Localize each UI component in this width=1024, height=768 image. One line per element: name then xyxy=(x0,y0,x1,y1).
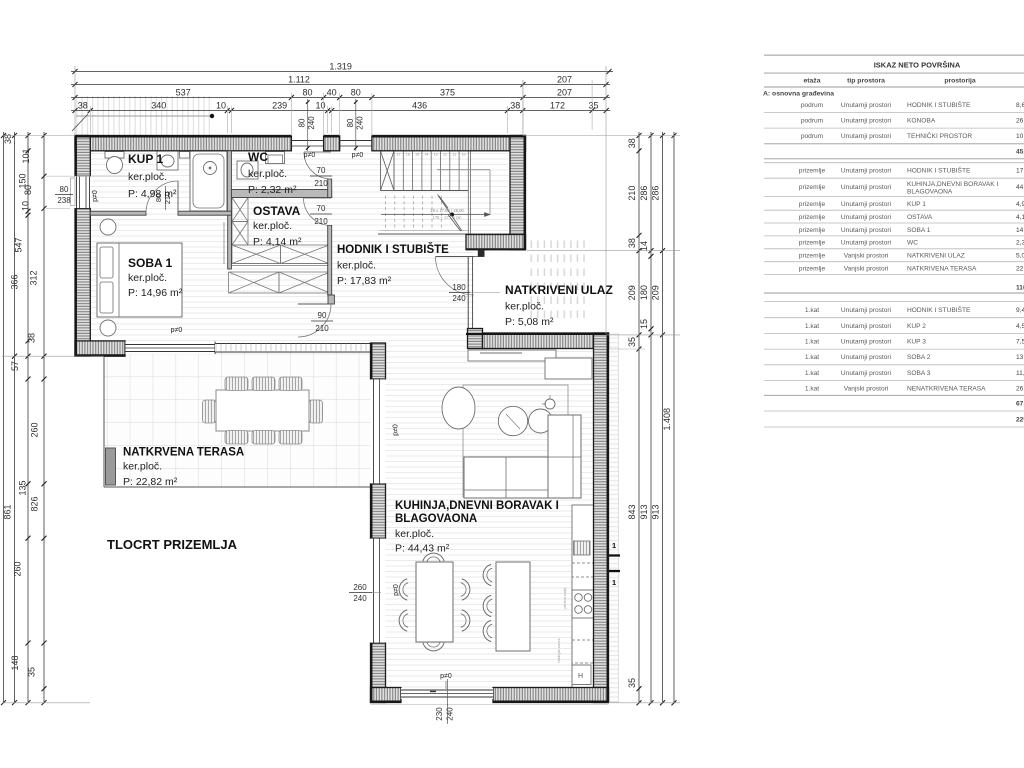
svg-text:286: 286 xyxy=(651,186,661,201)
svg-text:ker.ploč.: ker.ploč. xyxy=(253,220,292,232)
svg-text:80: 80 xyxy=(302,87,312,97)
svg-text:Unutarnji prostori: Unutarnji prostori xyxy=(841,102,892,109)
svg-text:ker.ploč.: ker.ploč. xyxy=(505,301,544,313)
svg-text:35: 35 xyxy=(627,678,637,688)
svg-text:913: 913 xyxy=(639,504,649,519)
svg-text:SOBA 3: SOBA 3 xyxy=(907,370,931,377)
svg-text:ISKAZ NETO POVRŠINA: ISKAZ NETO POVRŠINA xyxy=(874,61,961,70)
svg-text:WC: WC xyxy=(907,240,918,247)
svg-text:70: 70 xyxy=(317,204,326,213)
svg-text:SOBA 2: SOBA 2 xyxy=(907,354,931,361)
svg-text:KUP 2: KUP 2 xyxy=(907,323,926,330)
svg-text:Unutarnji prostori: Unutarnji prostori xyxy=(841,240,892,247)
svg-text:14: 14 xyxy=(639,241,649,251)
svg-text:Unutarnji prostori: Unutarnji prostori xyxy=(841,370,892,377)
svg-text:OSTAVA: OSTAVA xyxy=(253,204,301,218)
svg-text:80: 80 xyxy=(298,118,307,127)
svg-text:A: osnovna građevina: A: osnovna građevina xyxy=(763,90,834,97)
svg-text:KUP 3: KUP 3 xyxy=(907,339,926,346)
svg-text:ker.ploč.: ker.ploč. xyxy=(128,171,167,183)
svg-text:366: 366 xyxy=(10,274,20,289)
svg-text:436: 436 xyxy=(412,100,427,110)
svg-text:prizemlje: prizemlje xyxy=(799,201,826,208)
svg-text:101: 101 xyxy=(21,148,31,163)
svg-text:NATKRIVENI ULAZ: NATKRIVENI ULAZ xyxy=(505,283,613,297)
svg-text:260: 260 xyxy=(353,583,367,592)
svg-text:238: 238 xyxy=(57,196,71,205)
svg-text:70: 70 xyxy=(317,166,326,175)
svg-text:prizemlje: prizemlje xyxy=(799,253,826,260)
svg-text:207: 207 xyxy=(557,74,572,84)
svg-text:Unutarnji prostori: Unutarnji prostori xyxy=(841,184,892,191)
svg-text:4,98: 4,98 xyxy=(1016,201,1024,208)
svg-text:1.kat: 1.kat xyxy=(805,386,819,393)
svg-text:209: 209 xyxy=(627,285,637,300)
svg-text:Unutarnji prostori: Unutarnji prostori xyxy=(841,339,892,346)
svg-text:podrum: podrum xyxy=(801,118,824,125)
svg-text:180: 180 xyxy=(452,283,466,292)
svg-text:90: 90 xyxy=(318,311,327,320)
svg-text:537: 537 xyxy=(176,87,191,97)
svg-text:prizemlje: prizemlje xyxy=(799,227,826,234)
svg-text:p≠0: p≠0 xyxy=(352,152,364,159)
svg-text:1.408: 1.408 xyxy=(662,408,672,431)
svg-text:10: 10 xyxy=(462,153,466,157)
svg-text:175 + 27,00 cm: 175 + 27,00 cm xyxy=(433,215,462,220)
svg-text:KUHINJA,DNEVNI BORAVAK I: KUHINJA,DNEVNI BORAVAK I xyxy=(907,181,999,188)
svg-text:209: 209 xyxy=(651,285,661,300)
svg-text:HODNIK I STUBIŠTE: HODNIK I STUBIŠTE xyxy=(907,305,971,314)
svg-text:ker.ploč.: ker.ploč. xyxy=(123,461,162,473)
svg-text:40: 40 xyxy=(327,87,337,97)
svg-text:p≠0: p≠0 xyxy=(92,190,99,202)
svg-text:239: 239 xyxy=(272,100,287,110)
svg-text:1.kat: 1.kat xyxy=(805,370,819,377)
svg-text:26,45: 26,45 xyxy=(1016,118,1024,125)
svg-text:NATKRIVENI ULAZ: NATKRIVENI ULAZ xyxy=(907,253,965,260)
svg-text:P: 4,14 m²: P: 4,14 m² xyxy=(253,236,302,248)
svg-text:NATKRIVENA TERASA: NATKRIVENA TERASA xyxy=(907,265,977,272)
svg-text:Unutarnji prostori: Unutarnji prostori xyxy=(841,118,892,125)
svg-text:38: 38 xyxy=(627,238,637,248)
svg-text:P: 5,08 m²: P: 5,08 m² xyxy=(505,316,554,328)
svg-text:913: 913 xyxy=(651,504,661,519)
svg-text:KUHINJA,DNEVNI BORAVAK I: KUHINJA,DNEVNI BORAVAK I xyxy=(395,500,559,512)
svg-text:Unutarnji prostori: Unutarnji prostori xyxy=(841,214,892,221)
svg-text:2,32: 2,32 xyxy=(1016,240,1024,247)
svg-text:P: 44,43 m²: P: 44,43 m² xyxy=(395,543,450,555)
svg-text:10: 10 xyxy=(216,100,226,110)
svg-text:15: 15 xyxy=(415,153,419,157)
svg-text:11,60: 11,60 xyxy=(1016,370,1024,377)
svg-text:SOBA 1: SOBA 1 xyxy=(128,256,173,270)
svg-text:1: 1 xyxy=(612,541,616,550)
svg-text:148: 148 xyxy=(10,655,20,670)
svg-text:230: 230 xyxy=(435,707,444,721)
svg-text:240: 240 xyxy=(355,116,364,130)
svg-text:prizemlje: prizemlje xyxy=(799,168,826,175)
svg-text:p≠0: p≠0 xyxy=(171,327,183,334)
svg-text:hladnjak zamrz.: hladnjak zamrz. xyxy=(557,637,561,662)
svg-text:TLOCRT PRIZEMLJA: TLOCRT PRIZEMLJA xyxy=(107,537,238,552)
svg-text:Unutarnji prostori: Unutarnji prostori xyxy=(841,354,892,361)
svg-text:Unutarnji prostori: Unutarnji prostori xyxy=(841,307,892,314)
svg-text:perilica sudja: perilica sudja xyxy=(563,588,567,609)
svg-text:Unutarnji prostori: Unutarnji prostori xyxy=(841,201,892,208)
svg-text:260: 260 xyxy=(12,561,22,576)
svg-text:5,08: 5,08 xyxy=(1016,253,1024,260)
svg-text:KUP 1: KUP 1 xyxy=(128,152,163,166)
svg-text:45,41: 45,41 xyxy=(1016,149,1024,156)
svg-text:KONOBA: KONOBA xyxy=(907,118,936,125)
svg-text:11: 11 xyxy=(452,153,456,157)
svg-text:KUP 1: KUP 1 xyxy=(907,201,926,208)
svg-text:38: 38 xyxy=(78,100,88,110)
svg-text:Unutarnji prostori: Unutarnji prostori xyxy=(841,227,892,234)
svg-text:240: 240 xyxy=(452,294,466,303)
svg-text:44,43: 44,43 xyxy=(1016,184,1024,191)
svg-text:10,32: 10,32 xyxy=(1016,133,1024,140)
svg-text:312: 312 xyxy=(29,270,39,285)
svg-text:210: 210 xyxy=(314,179,328,188)
svg-text:BLAGOVAONA: BLAGOVAONA xyxy=(907,189,953,196)
svg-text:67,50: 67,50 xyxy=(1016,401,1024,408)
svg-text:1.112: 1.112 xyxy=(288,74,310,84)
svg-text:375: 375 xyxy=(440,87,455,97)
svg-text:22,82: 22,82 xyxy=(1016,265,1024,272)
svg-text:prizemlje: prizemlje xyxy=(799,214,826,221)
svg-text:80: 80 xyxy=(346,118,355,127)
svg-text:P: 14,96 m²: P: 14,96 m² xyxy=(128,287,183,299)
svg-text:240: 240 xyxy=(307,116,316,130)
svg-text:340: 340 xyxy=(151,100,166,110)
svg-text:NENATKRIVENA TERASA: NENATKRIVENA TERASA xyxy=(907,386,986,393)
svg-text:BLAGOVAONA: BLAGOVAONA xyxy=(395,513,477,525)
svg-text:ker.ploč.: ker.ploč. xyxy=(128,272,167,284)
svg-text:Vanjski prostori: Vanjski prostori xyxy=(844,386,889,393)
svg-text:1.319: 1.319 xyxy=(329,61,352,71)
svg-text:P: 17,83 m²: P: 17,83 m² xyxy=(337,275,392,287)
svg-text:17,83: 17,83 xyxy=(1016,168,1024,175)
svg-text:etaža: etaža xyxy=(803,78,820,85)
svg-text:210: 210 xyxy=(315,324,329,333)
svg-text:podrum: podrum xyxy=(801,102,824,109)
svg-text:HODNIK I STUBIŠTE: HODNIK I STUBIŠTE xyxy=(337,243,449,256)
svg-text:13,50: 13,50 xyxy=(1016,354,1024,361)
svg-text:240: 240 xyxy=(353,594,367,603)
svg-text:TEHNIČKI PROSTOR: TEHNIČKI PROSTOR xyxy=(907,131,972,140)
svg-text:prostorija: prostorija xyxy=(944,78,976,85)
svg-text:9,40: 9,40 xyxy=(1016,307,1024,314)
svg-text:p≠0: p≠0 xyxy=(393,424,400,436)
svg-text:podrum: podrum xyxy=(801,133,824,140)
svg-text:180: 180 xyxy=(639,285,649,300)
svg-text:80: 80 xyxy=(60,185,69,194)
svg-text:HODNIK I STUBIŠTE: HODNIK I STUBIŠTE xyxy=(907,100,971,109)
svg-text:861: 861 xyxy=(3,504,13,519)
svg-text:HODNIK I STUBIŠTE: HODNIK I STUBIŠTE xyxy=(907,166,971,175)
svg-text:10: 10 xyxy=(315,100,325,110)
svg-text:843: 843 xyxy=(627,504,637,519)
svg-text:WC: WC xyxy=(248,150,268,164)
svg-text:P: 2,32 m²: P: 2,32 m² xyxy=(248,184,297,196)
svg-text:18 x 17,50 / 28,00: 18 x 17,50 / 28,00 xyxy=(430,208,464,213)
svg-text:229,47: 229,47 xyxy=(1016,416,1024,423)
svg-text:8,64: 8,64 xyxy=(1016,102,1024,109)
svg-text:38: 38 xyxy=(510,100,520,110)
svg-text:135: 135 xyxy=(18,480,28,495)
svg-text:13: 13 xyxy=(434,153,438,157)
svg-text:p≠0: p≠0 xyxy=(304,152,316,159)
svg-text:P: 22,82 m²: P: 22,82 m² xyxy=(123,476,178,488)
svg-text:1: 1 xyxy=(612,578,616,587)
svg-text:12: 12 xyxy=(443,153,447,157)
svg-text:14: 14 xyxy=(424,153,428,157)
svg-text:10: 10 xyxy=(21,201,31,211)
svg-text:1.kat: 1.kat xyxy=(805,339,819,346)
svg-text:116,56: 116,56 xyxy=(1016,284,1024,291)
svg-text:Unutarnji prostori: Unutarnji prostori xyxy=(841,168,892,175)
svg-text:172: 172 xyxy=(550,100,565,110)
svg-text:260: 260 xyxy=(30,422,40,437)
svg-text:7,50: 7,50 xyxy=(1016,339,1024,346)
svg-text:H: H xyxy=(578,673,583,680)
svg-text:80: 80 xyxy=(351,87,361,97)
svg-text:17: 17 xyxy=(397,153,401,157)
svg-text:38: 38 xyxy=(27,333,37,343)
svg-text:1.kat: 1.kat xyxy=(805,354,819,361)
svg-text:16: 16 xyxy=(406,153,410,157)
svg-text:prizemlje: prizemlje xyxy=(799,240,826,247)
svg-text:ker.ploč.: ker.ploč. xyxy=(248,168,287,180)
svg-text:240: 240 xyxy=(446,707,455,721)
svg-text:1.kat: 1.kat xyxy=(805,323,819,330)
svg-text:826: 826 xyxy=(30,496,40,511)
svg-text:Unutarnji prostori: Unutarnji prostori xyxy=(841,323,892,330)
svg-text:26,50: 26,50 xyxy=(1016,386,1024,393)
svg-text:prizemlje: prizemlje xyxy=(799,265,826,272)
svg-text:P: 4,98 m²: P: 4,98 m² xyxy=(128,188,177,200)
svg-text:Unutarnji prostori: Unutarnji prostori xyxy=(841,133,892,140)
svg-text:NATKRVENA TERASA: NATKRVENA TERASA xyxy=(123,447,244,459)
svg-text:38: 38 xyxy=(627,138,637,148)
svg-text:207: 207 xyxy=(557,87,572,97)
svg-text:ker.ploč.: ker.ploč. xyxy=(395,528,434,540)
svg-text:ker.ploč.: ker.ploč. xyxy=(337,260,376,272)
svg-text:35: 35 xyxy=(26,667,36,677)
svg-text:210: 210 xyxy=(314,217,328,226)
svg-text:210: 210 xyxy=(627,186,637,201)
svg-text:p≠0: p≠0 xyxy=(440,673,452,680)
svg-text:547: 547 xyxy=(14,237,24,252)
svg-text:Vanjski prostori: Vanjski prostori xyxy=(844,253,889,260)
svg-text:15: 15 xyxy=(639,319,649,329)
svg-text:4,14: 4,14 xyxy=(1016,214,1024,221)
svg-text:1.kat: 1.kat xyxy=(805,307,819,314)
svg-text:57: 57 xyxy=(10,361,20,371)
svg-text:SOBA 1: SOBA 1 xyxy=(907,227,931,234)
svg-text:14,96: 14,96 xyxy=(1016,227,1024,234)
svg-text:80: 80 xyxy=(23,185,33,195)
svg-text:35: 35 xyxy=(588,100,598,110)
svg-text:p≠0: p≠0 xyxy=(393,584,400,596)
svg-text:35: 35 xyxy=(627,337,637,347)
svg-text:286: 286 xyxy=(639,186,649,201)
svg-text:Vanjski prostori: Vanjski prostori xyxy=(844,265,889,272)
svg-text:4,50: 4,50 xyxy=(1016,323,1024,330)
svg-text:OSTAVA: OSTAVA xyxy=(907,214,933,221)
svg-text:prizemlje: prizemlje xyxy=(799,184,826,191)
svg-text:tip prostora: tip prostora xyxy=(847,78,885,85)
